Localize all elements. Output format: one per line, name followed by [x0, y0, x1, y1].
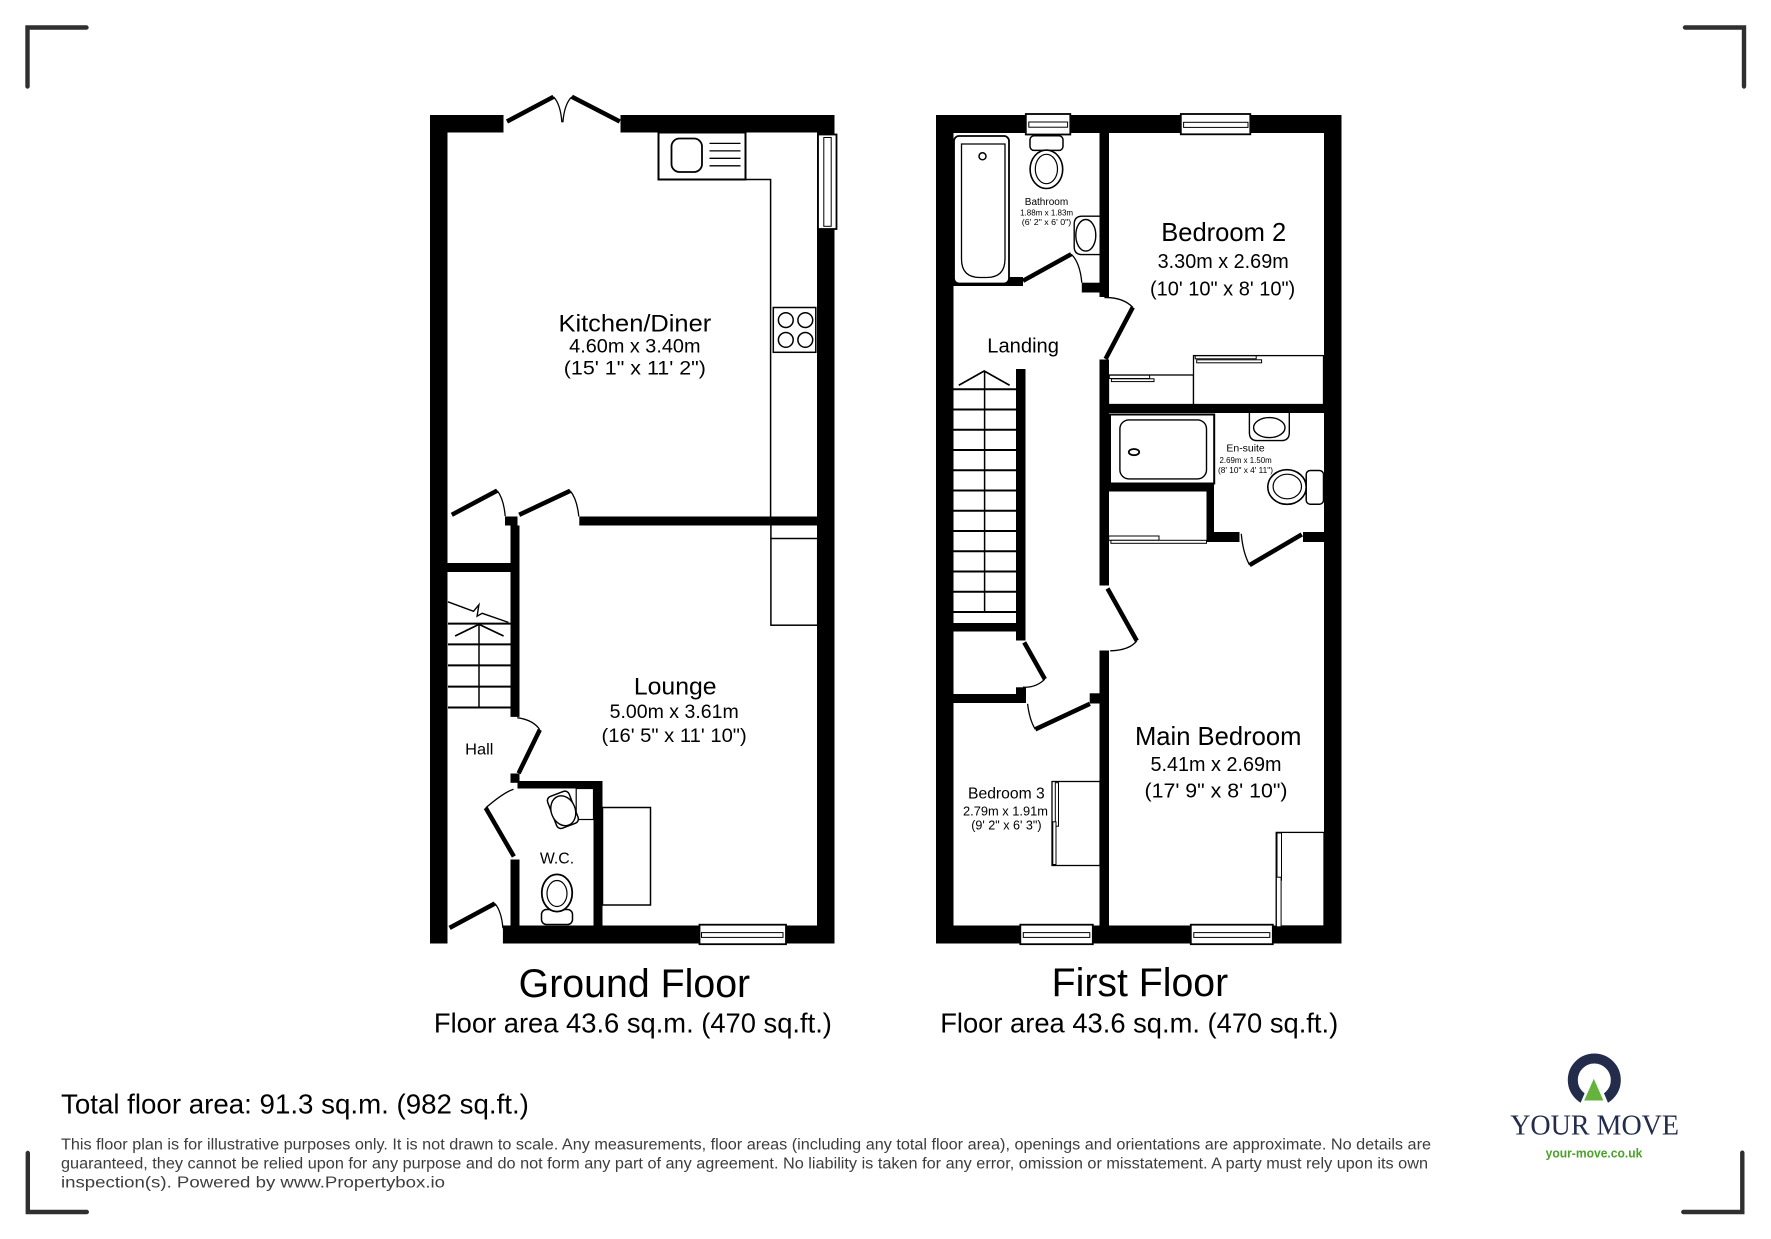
svg-text:5.41m x 2.69m: 5.41m x 2.69m [1151, 753, 1282, 776]
svg-text:(16' 5" x 11' 10"): (16' 5" x 11' 10") [602, 725, 747, 747]
svg-text:Bedroom 3: Bedroom 3 [968, 786, 1045, 803]
svg-text:Floor area 43.6 sq.m. (470 sq.: Floor area 43.6 sq.m. (470 sq.ft.) [434, 1008, 832, 1039]
svg-text:(10' 10" x 8' 10"): (10' 10" x 8' 10") [1150, 277, 1295, 300]
svg-text:5.00m x 3.61m: 5.00m x 3.61m [610, 701, 739, 723]
svg-text:Total floor area: 91.3 sq.m. (: Total floor area: 91.3 sq.m. (982 sq.ft.… [61, 1089, 529, 1120]
svg-text:your-move.co.uk: your-move.co.uk [1546, 1147, 1643, 1161]
svg-text:inspection(s). Powered by www.: inspection(s). Powered by www.Propertybo… [61, 1174, 445, 1191]
svg-text:(17' 9" x 8' 10"): (17' 9" x 8' 10") [1145, 779, 1288, 802]
svg-text:2.79m x 1.91m: 2.79m x 1.91m [963, 805, 1048, 819]
svg-text:Kitchen/Diner: Kitchen/Diner [559, 311, 712, 338]
svg-text:Landing: Landing [987, 335, 1059, 357]
svg-text:This floor plan is for illustr: This floor plan is for illustrative purp… [61, 1137, 1431, 1154]
svg-text:YOUR MOVE: YOUR MOVE [1510, 1111, 1679, 1142]
svg-text:3.30m x 2.69m: 3.30m x 2.69m [1158, 250, 1289, 273]
svg-text:En-suite: En-suite [1226, 443, 1265, 454]
svg-text:Ground Floor: Ground Floor [519, 962, 751, 1006]
svg-text:Bedroom 2: Bedroom 2 [1161, 217, 1286, 247]
svg-text:guaranteed, they cannot be rel: guaranteed, they cannot be relied upon f… [61, 1156, 1428, 1173]
svg-text:Bathroom: Bathroom [1025, 197, 1069, 208]
svg-text:Hall: Hall [465, 742, 493, 759]
svg-text:W.C.: W.C. [540, 851, 574, 868]
svg-text:(15' 1" x 11' 2"): (15' 1" x 11' 2") [564, 358, 706, 380]
svg-text:First Floor: First Floor [1052, 961, 1229, 1005]
svg-text:(8' 10" x 4' 11"): (8' 10" x 4' 11") [1218, 465, 1273, 475]
svg-text:Main Bedroom: Main Bedroom [1135, 721, 1302, 751]
svg-text:Lounge: Lounge [634, 674, 717, 701]
svg-text:(9' 2" x 6' 3"): (9' 2" x 6' 3") [971, 819, 1041, 833]
svg-text:4.60m x 3.40m: 4.60m x 3.40m [569, 336, 700, 358]
svg-text:2.69m x 1.50m: 2.69m x 1.50m [1220, 455, 1272, 465]
svg-text:(6' 2" x 6' 0"): (6' 2" x 6' 0") [1022, 217, 1072, 227]
svg-text:Floor area 43.6 sq.m. (470 sq.: Floor area 43.6 sq.m. (470 sq.ft.) [940, 1008, 1338, 1039]
